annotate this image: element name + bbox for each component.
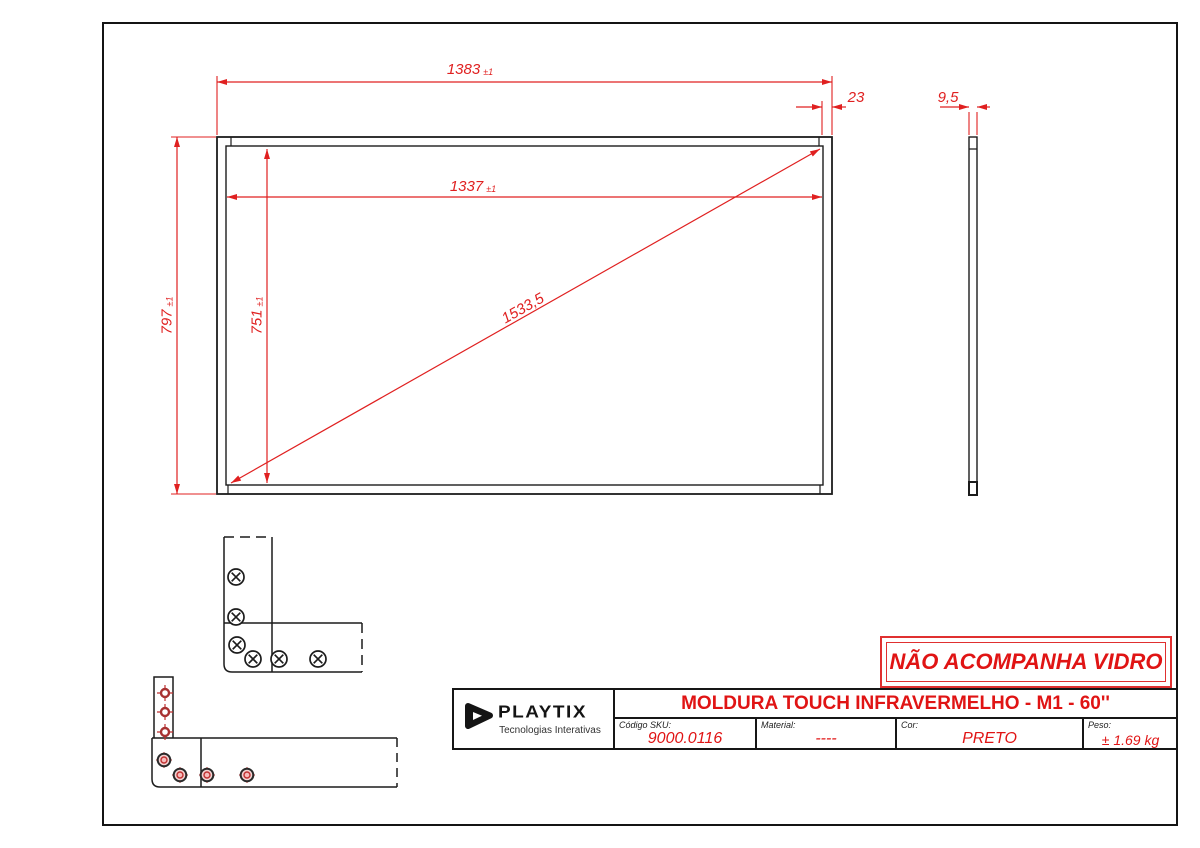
dimension-outer-width: 1383±1: [400, 62, 540, 79]
field-material: Material: ----: [758, 719, 894, 749]
field-label: Peso:: [1088, 720, 1111, 730]
dim-value: 797: [159, 309, 176, 334]
dimension-outer-height: 797±1: [160, 246, 177, 386]
notice-box: NÃO ACOMPANHA VIDRO: [880, 636, 1172, 688]
field-value: ----: [758, 730, 894, 748]
dimension-thickness: 9,5: [928, 90, 968, 105]
field-label: Cor:: [901, 720, 918, 730]
drawing-sheet: 1383±1 1337±1 23 9,5 797±1 751±1 1533,5 …: [0, 0, 1200, 848]
field-value: 9000.0116: [616, 730, 754, 748]
title-block-divider: [755, 719, 757, 750]
brand-name: PLAYTIX: [498, 703, 610, 723]
title-block-divider: [895, 719, 897, 750]
dim-value: 1383: [447, 61, 480, 78]
side-view: [969, 137, 977, 495]
dim-tolerance: ±1: [483, 67, 493, 77]
field-peso: Peso: ± 1.69 kg: [1085, 719, 1176, 749]
dimension-inner-width: 1337±1: [403, 179, 543, 196]
field-value: ± 1.69 kg: [1085, 732, 1176, 748]
brand-tagline: Tecnologias Interativas: [490, 725, 610, 736]
dimension-inner-height: 751±1: [250, 246, 267, 386]
notice-text: NÃO ACOMPANHA VIDRO: [890, 649, 1163, 675]
field-value: PRETO: [898, 730, 1081, 748]
field-cor: Cor: PRETO: [898, 719, 1081, 749]
field-label: Código SKU:: [619, 720, 671, 730]
company-logo: PLAYTIX Tecnologias Interativas: [456, 696, 610, 744]
dim-value: 1337: [450, 178, 483, 195]
dim-value: 9,5: [938, 89, 959, 106]
dim-value: 751: [249, 309, 266, 334]
field-codigo-sku: Código SKU: 9000.0116: [616, 719, 754, 749]
corner-bracket-detail-front: [224, 537, 362, 672]
dim-value: 23: [848, 89, 865, 106]
notice-inner-border: NÃO ACOMPANHA VIDRO: [886, 642, 1166, 682]
dim-tolerance: ±1: [486, 184, 496, 194]
drawing-title: MOLDURA TOUCH INFRAVERMELHO - M1 - 60'': [615, 690, 1176, 717]
title-block-divider: [1082, 719, 1084, 750]
dimension-border-width: 23: [836, 90, 876, 105]
extension-lines: [171, 76, 977, 494]
corner-bracket-detail-back: [152, 677, 397, 787]
dim-tolerance: ±1: [255, 297, 265, 307]
dim-tolerance: ±1: [165, 297, 175, 307]
field-label: Material:: [761, 720, 796, 730]
dimension-lines: [177, 82, 990, 494]
